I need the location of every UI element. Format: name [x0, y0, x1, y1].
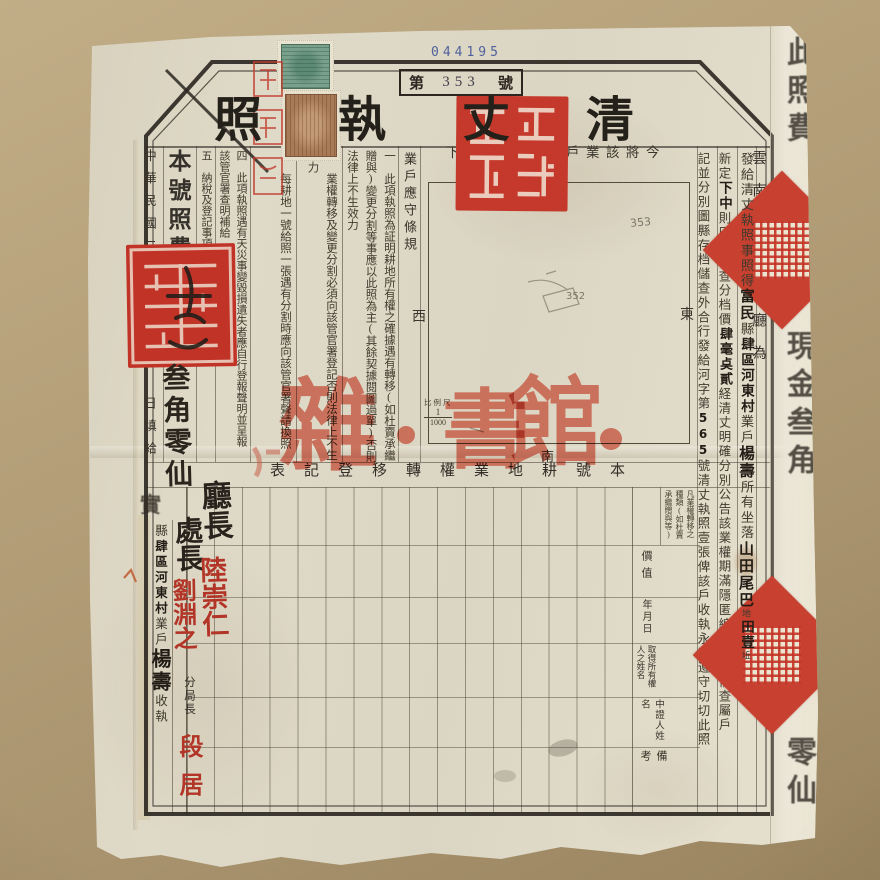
library-overprint-dot — [397, 426, 415, 444]
printed-text: 收執 — [153, 694, 167, 725]
printed-text: 業戶 — [739, 415, 754, 445]
grantee-column: 發給清丈執照事照得富民縣肆區河東村業戶楊壽所有坐落山田尾巴地田壹坵 — [735, 152, 757, 814]
handwritten-place-name: 山田尾巴 — [737, 541, 755, 609]
bleed-through-text: 現金叁角 — [776, 330, 820, 520]
signature-name-duan-ju: 段居 — [172, 734, 207, 812]
serial-number: 044195 — [431, 45, 502, 60]
handwritten-parcel: 田壹 — [738, 620, 754, 651]
handwritten-certificate-number: 565 — [696, 411, 710, 459]
table-header-remarks: 備考 — [637, 750, 669, 812]
photo-of-old-chinese-land-certificate: 044195 第 353 號 照執丈清 下如圖繪地耕戶業該將今 北 東 西 南 … — [0, 0, 880, 880]
printed-text: 縣 — [153, 524, 167, 540]
table-header-witness-name: 中證人姓名 — [637, 699, 665, 745]
inner-seal-pattern — [753, 221, 811, 279]
table-header-acquirer-name: 取得所有權人之姓名 — [633, 645, 657, 695]
printed-text: 發給清丈執照事照得 — [739, 152, 754, 289]
seal-script-pattern — [126, 243, 237, 368]
library-overprint-char: 館 — [508, 376, 604, 472]
signature-role-branch-chief: 分局長 — [181, 676, 197, 726]
diamond-shape — [693, 576, 851, 734]
paper-content: 044195 第 353 號 照執丈清 下如圖繪地耕戶業該將今 北 東 西 南 … — [0, 0, 880, 880]
item-number: 五 — [200, 150, 212, 161]
diamond-shape — [703, 171, 861, 329]
document-title: 照執丈清 — [214, 80, 654, 150]
bleed-through-text: 此照費 — [776, 36, 820, 181]
handwritten-price: 肆毫奌貳 — [717, 327, 732, 387]
printed-text: 地 — [741, 609, 751, 620]
table-note: 凡業權轉移之種類(如杜賣承繼贈與等) — [662, 490, 696, 544]
printed-text: 縣 — [739, 322, 754, 337]
library-overprint-dot — [600, 428, 622, 450]
official-red-seal-left — [126, 243, 237, 368]
table-header-value: 價值 — [638, 550, 654, 594]
pencil-plot-number: 352 — [566, 291, 585, 302]
map-direction-east: 東 — [680, 304, 694, 324]
bleed-through-text: 零仙 — [776, 736, 820, 836]
item-number: 四 — [235, 150, 247, 161]
table-header-date: 年月日 — [638, 599, 653, 641]
pencil-plot-number: 353 — [629, 215, 651, 230]
handwritten-owner-name: 楊壽 — [737, 445, 756, 480]
item-number: 一 — [383, 150, 395, 162]
signature-name-liu-yuanzhi: 劉淵之 — [165, 578, 202, 687]
red-diamond-seal-bottom — [693, 576, 851, 734]
printed-text: 所有坐落 — [739, 480, 754, 541]
handwritten-county: 富民 — [738, 289, 755, 322]
regulations-heading: 業戶應守條規 — [400, 152, 419, 282]
handwritten-district-village: 肆區河東村 — [738, 337, 754, 415]
red-diamond-seal-top — [703, 171, 861, 329]
library-overprint-char: 雜 — [278, 378, 378, 478]
bleed-through-char-left: 實 — [140, 489, 161, 519]
printed-text: 坵 — [741, 651, 751, 662]
item-text: 納稅及登記事項 — [200, 172, 212, 249]
map-direction-west: 西 — [412, 306, 426, 326]
